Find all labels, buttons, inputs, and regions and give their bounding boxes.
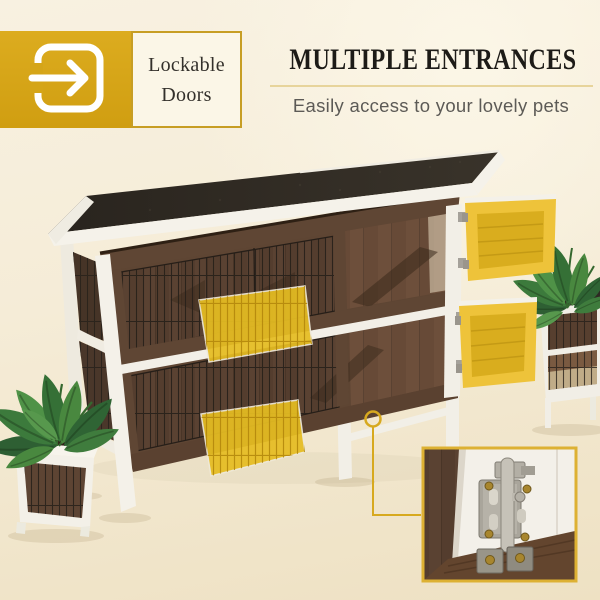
header: MULTIPLE ENTRANCES Easily access to your… — [254, 44, 600, 117]
headline-divider — [270, 85, 593, 87]
door-enter-icon — [26, 41, 106, 119]
feature-badge-label-text: Lockable Doors — [141, 50, 233, 110]
feature-badge: Lockable Doors — [0, 31, 242, 128]
lower-side-door — [455, 297, 537, 388]
subheadline: Easily access to your lovely pets — [254, 95, 600, 117]
headline: MULTIPLE ENTRANCES — [289, 44, 572, 76]
upper-side-door — [462, 194, 556, 281]
feature-badge-label: Lockable Doors — [131, 31, 242, 128]
promo-image: Lockable Doors MULTIPLE ENTRANCES Easily… — [0, 0, 600, 600]
lock-closeup-inset — [423, 448, 576, 581]
feature-badge-icon-box — [0, 31, 131, 128]
